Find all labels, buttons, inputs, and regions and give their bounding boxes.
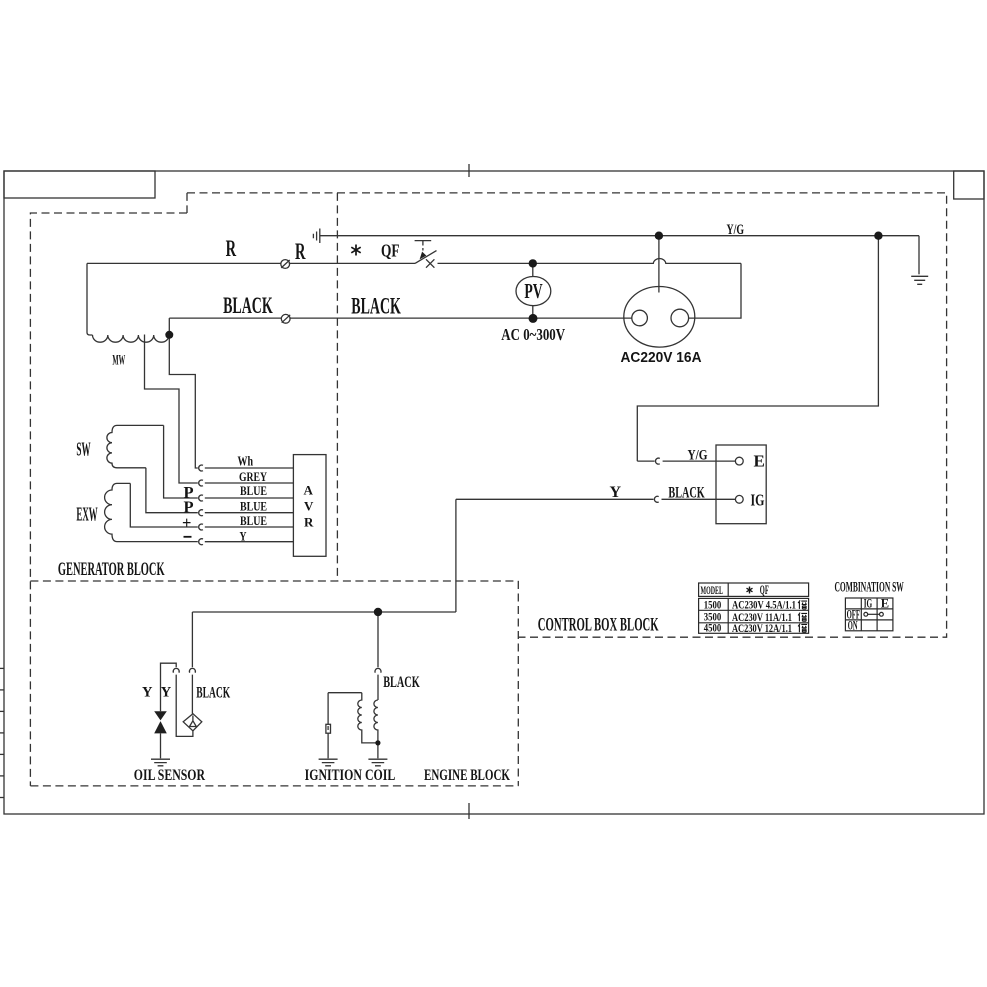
- svg-text:IGNITION COIL: IGNITION COIL: [305, 767, 396, 784]
- svg-text:BLUE: BLUE: [240, 483, 267, 498]
- svg-text:OIL SENSOR: OIL SENSOR: [134, 767, 206, 784]
- svg-text:ON: ON: [848, 618, 858, 632]
- svg-text:BLACK: BLACK: [383, 674, 420, 691]
- svg-text:AC 0~300V: AC 0~300V: [501, 325, 565, 344]
- svg-text:4500: 4500: [704, 623, 722, 635]
- svg-text:BLUE: BLUE: [240, 498, 267, 513]
- svg-text:E: E: [881, 597, 889, 611]
- svg-text:QF: QF: [760, 583, 769, 597]
- svg-text:R: R: [304, 515, 314, 530]
- svg-text:BLACK: BLACK: [351, 294, 401, 319]
- svg-text:Y/G: Y/G: [727, 222, 745, 238]
- svg-text:+: +: [182, 513, 191, 532]
- svg-text:QF: QF: [381, 241, 400, 261]
- svg-text:MW: MW: [112, 353, 125, 369]
- svg-text:SW: SW: [76, 438, 90, 460]
- svg-text:GENERATOR BLOCK: GENERATOR BLOCK: [58, 560, 165, 580]
- svg-text:ENGINE BLOCK: ENGINE BLOCK: [424, 767, 510, 784]
- svg-text:R: R: [226, 236, 237, 261]
- svg-text:1500: 1500: [704, 599, 722, 611]
- svg-text:Y/G: Y/G: [688, 448, 708, 464]
- svg-text:AC220V 16A: AC220V 16A: [621, 350, 702, 366]
- svg-text:R: R: [295, 239, 306, 264]
- svg-text:IG: IG: [864, 597, 873, 611]
- svg-text:BLUE: BLUE: [240, 513, 267, 528]
- svg-text:Y: Y: [240, 529, 247, 544]
- svg-text:E: E: [754, 452, 765, 471]
- svg-text:PV: PV: [524, 279, 543, 303]
- svg-text:BLACK: BLACK: [668, 484, 705, 501]
- svg-text:GREY: GREY: [239, 469, 267, 484]
- svg-text:COMBINATION SW: COMBINATION SW: [835, 580, 905, 596]
- svg-text:Y: Y: [161, 685, 172, 701]
- svg-text:EXW: EXW: [76, 504, 97, 526]
- svg-text:BLACK: BLACK: [223, 293, 273, 318]
- svg-text:Y: Y: [610, 484, 622, 501]
- svg-text:IG: IG: [751, 491, 765, 510]
- svg-text:CONTROL BOX BLOCK: CONTROL BOX BLOCK: [538, 616, 659, 636]
- svg-text:AC230V 4.5A/1.1: AC230V 4.5A/1.1: [732, 600, 796, 612]
- svg-text:Wh: Wh: [238, 454, 254, 469]
- svg-text:BLACK: BLACK: [196, 684, 230, 701]
- svg-text:V: V: [304, 499, 314, 514]
- svg-text:MODEL: MODEL: [701, 585, 724, 597]
- svg-text:AC230V 12A/1.1: AC230V 12A/1.1: [732, 623, 792, 635]
- svg-text:A: A: [304, 483, 314, 498]
- svg-text:Y: Y: [142, 685, 153, 701]
